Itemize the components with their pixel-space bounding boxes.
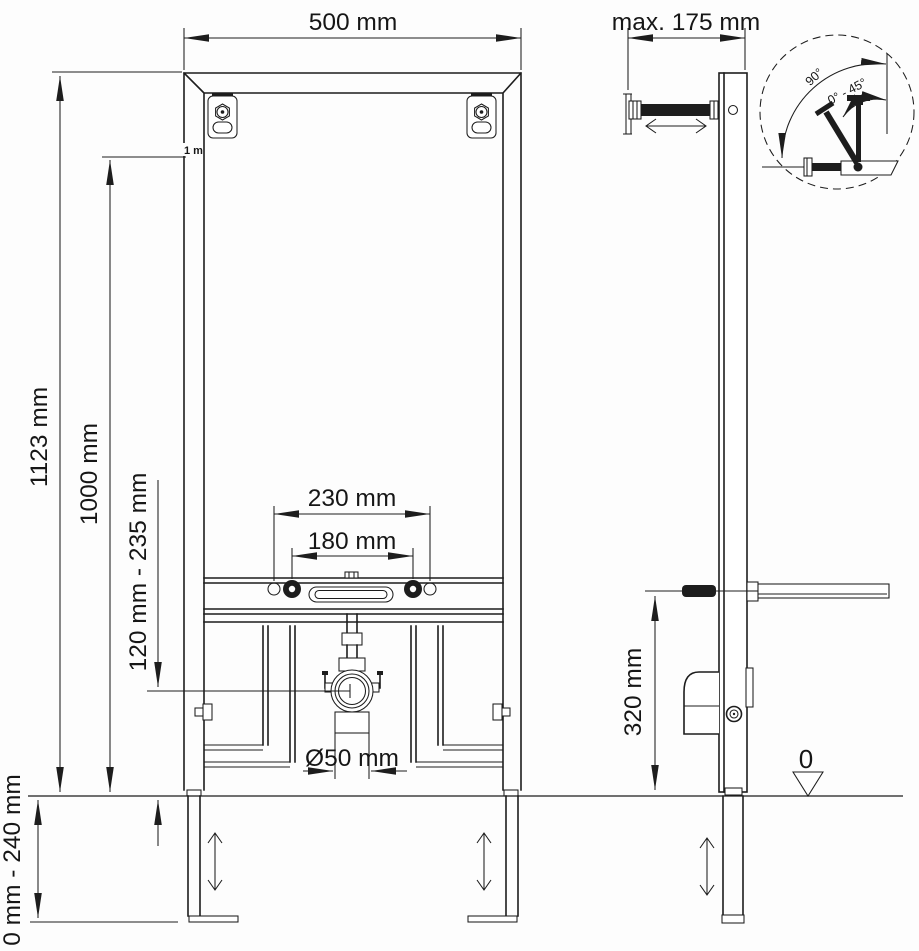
foot-insert-left bbox=[187, 790, 201, 796]
screw-45 bbox=[826, 112, 857, 163]
dim-fixing-inner: 180 mm bbox=[292, 528, 413, 579]
dim-pipe-diameter: Ø50 mm bbox=[303, 733, 407, 779]
height-adjust-arrow-right bbox=[477, 833, 491, 890]
dim-width-label: 500 mm bbox=[309, 9, 398, 36]
dim-fixing-inner-label: 180 mm bbox=[308, 528, 397, 555]
dim-drain-height: 320 mm bbox=[620, 596, 655, 790]
angle-90-label: 90° bbox=[803, 66, 826, 89]
dim-total-height: 1123 mm bbox=[26, 72, 182, 792]
wall-bracket-left bbox=[208, 93, 237, 138]
dim-foot-range-label: 0 mm - 240 mm bbox=[0, 774, 26, 946]
wall-bracket-right bbox=[467, 93, 496, 138]
side-bolt-left bbox=[203, 704, 212, 720]
arc-90 bbox=[782, 64, 886, 158]
floor-datum: 0 bbox=[793, 744, 823, 796]
dim-pipe-diameter-label: Ø50 mm bbox=[305, 745, 399, 772]
adjustable-foot-left bbox=[188, 796, 238, 922]
cistern-crossbar bbox=[204, 572, 503, 622]
datum-triangle bbox=[793, 772, 823, 796]
dim-width: 500 mm bbox=[184, 9, 521, 70]
fixing-hole-outer-left bbox=[268, 583, 280, 595]
dim-foot-range: 0 mm - 240 mm bbox=[0, 774, 178, 946]
detail-circle: 90° 0° - 45° bbox=[760, 35, 914, 189]
front-view: 1 m bbox=[0, 9, 521, 946]
bracket-plate bbox=[841, 161, 898, 175]
screw-vertical bbox=[856, 104, 861, 162]
frame-profile bbox=[719, 73, 753, 792]
arc-45 bbox=[843, 99, 886, 117]
dim-fixing-outer-label: 230 mm bbox=[308, 485, 397, 512]
datum-label: 0 bbox=[799, 744, 813, 774]
meter-mark-label: 1 m bbox=[184, 145, 203, 157]
drain-pipe-clamp bbox=[322, 614, 383, 733]
bowl-fixing-rod bbox=[645, 582, 889, 601]
fixing-hole-outer-right bbox=[424, 583, 436, 595]
dim-total-height-label: 1123 mm bbox=[26, 387, 53, 487]
side-foot bbox=[700, 788, 744, 923]
technical-drawing: 1 m bbox=[0, 0, 919, 951]
foot-insert-right bbox=[504, 790, 518, 796]
height-adjust-arrow-side bbox=[700, 838, 714, 895]
dim-wall-distance-label: max. 175 mm bbox=[612, 9, 760, 36]
dim-outlet-height-label: 120 mm - 235 mm bbox=[125, 473, 152, 672]
depth-adjust-arrow bbox=[646, 119, 706, 133]
side-bolt-right bbox=[493, 704, 502, 720]
adjustable-foot-right bbox=[468, 796, 518, 922]
wall-anchor-rod bbox=[623, 94, 722, 134]
crossbar-slot bbox=[309, 587, 393, 602]
pivot-point bbox=[854, 163, 863, 172]
height-adjust-arrow-left bbox=[208, 833, 222, 890]
dim-drain-height-label: 320 mm bbox=[620, 648, 647, 737]
dim-upper-height-label: 1000 mm bbox=[76, 423, 103, 525]
